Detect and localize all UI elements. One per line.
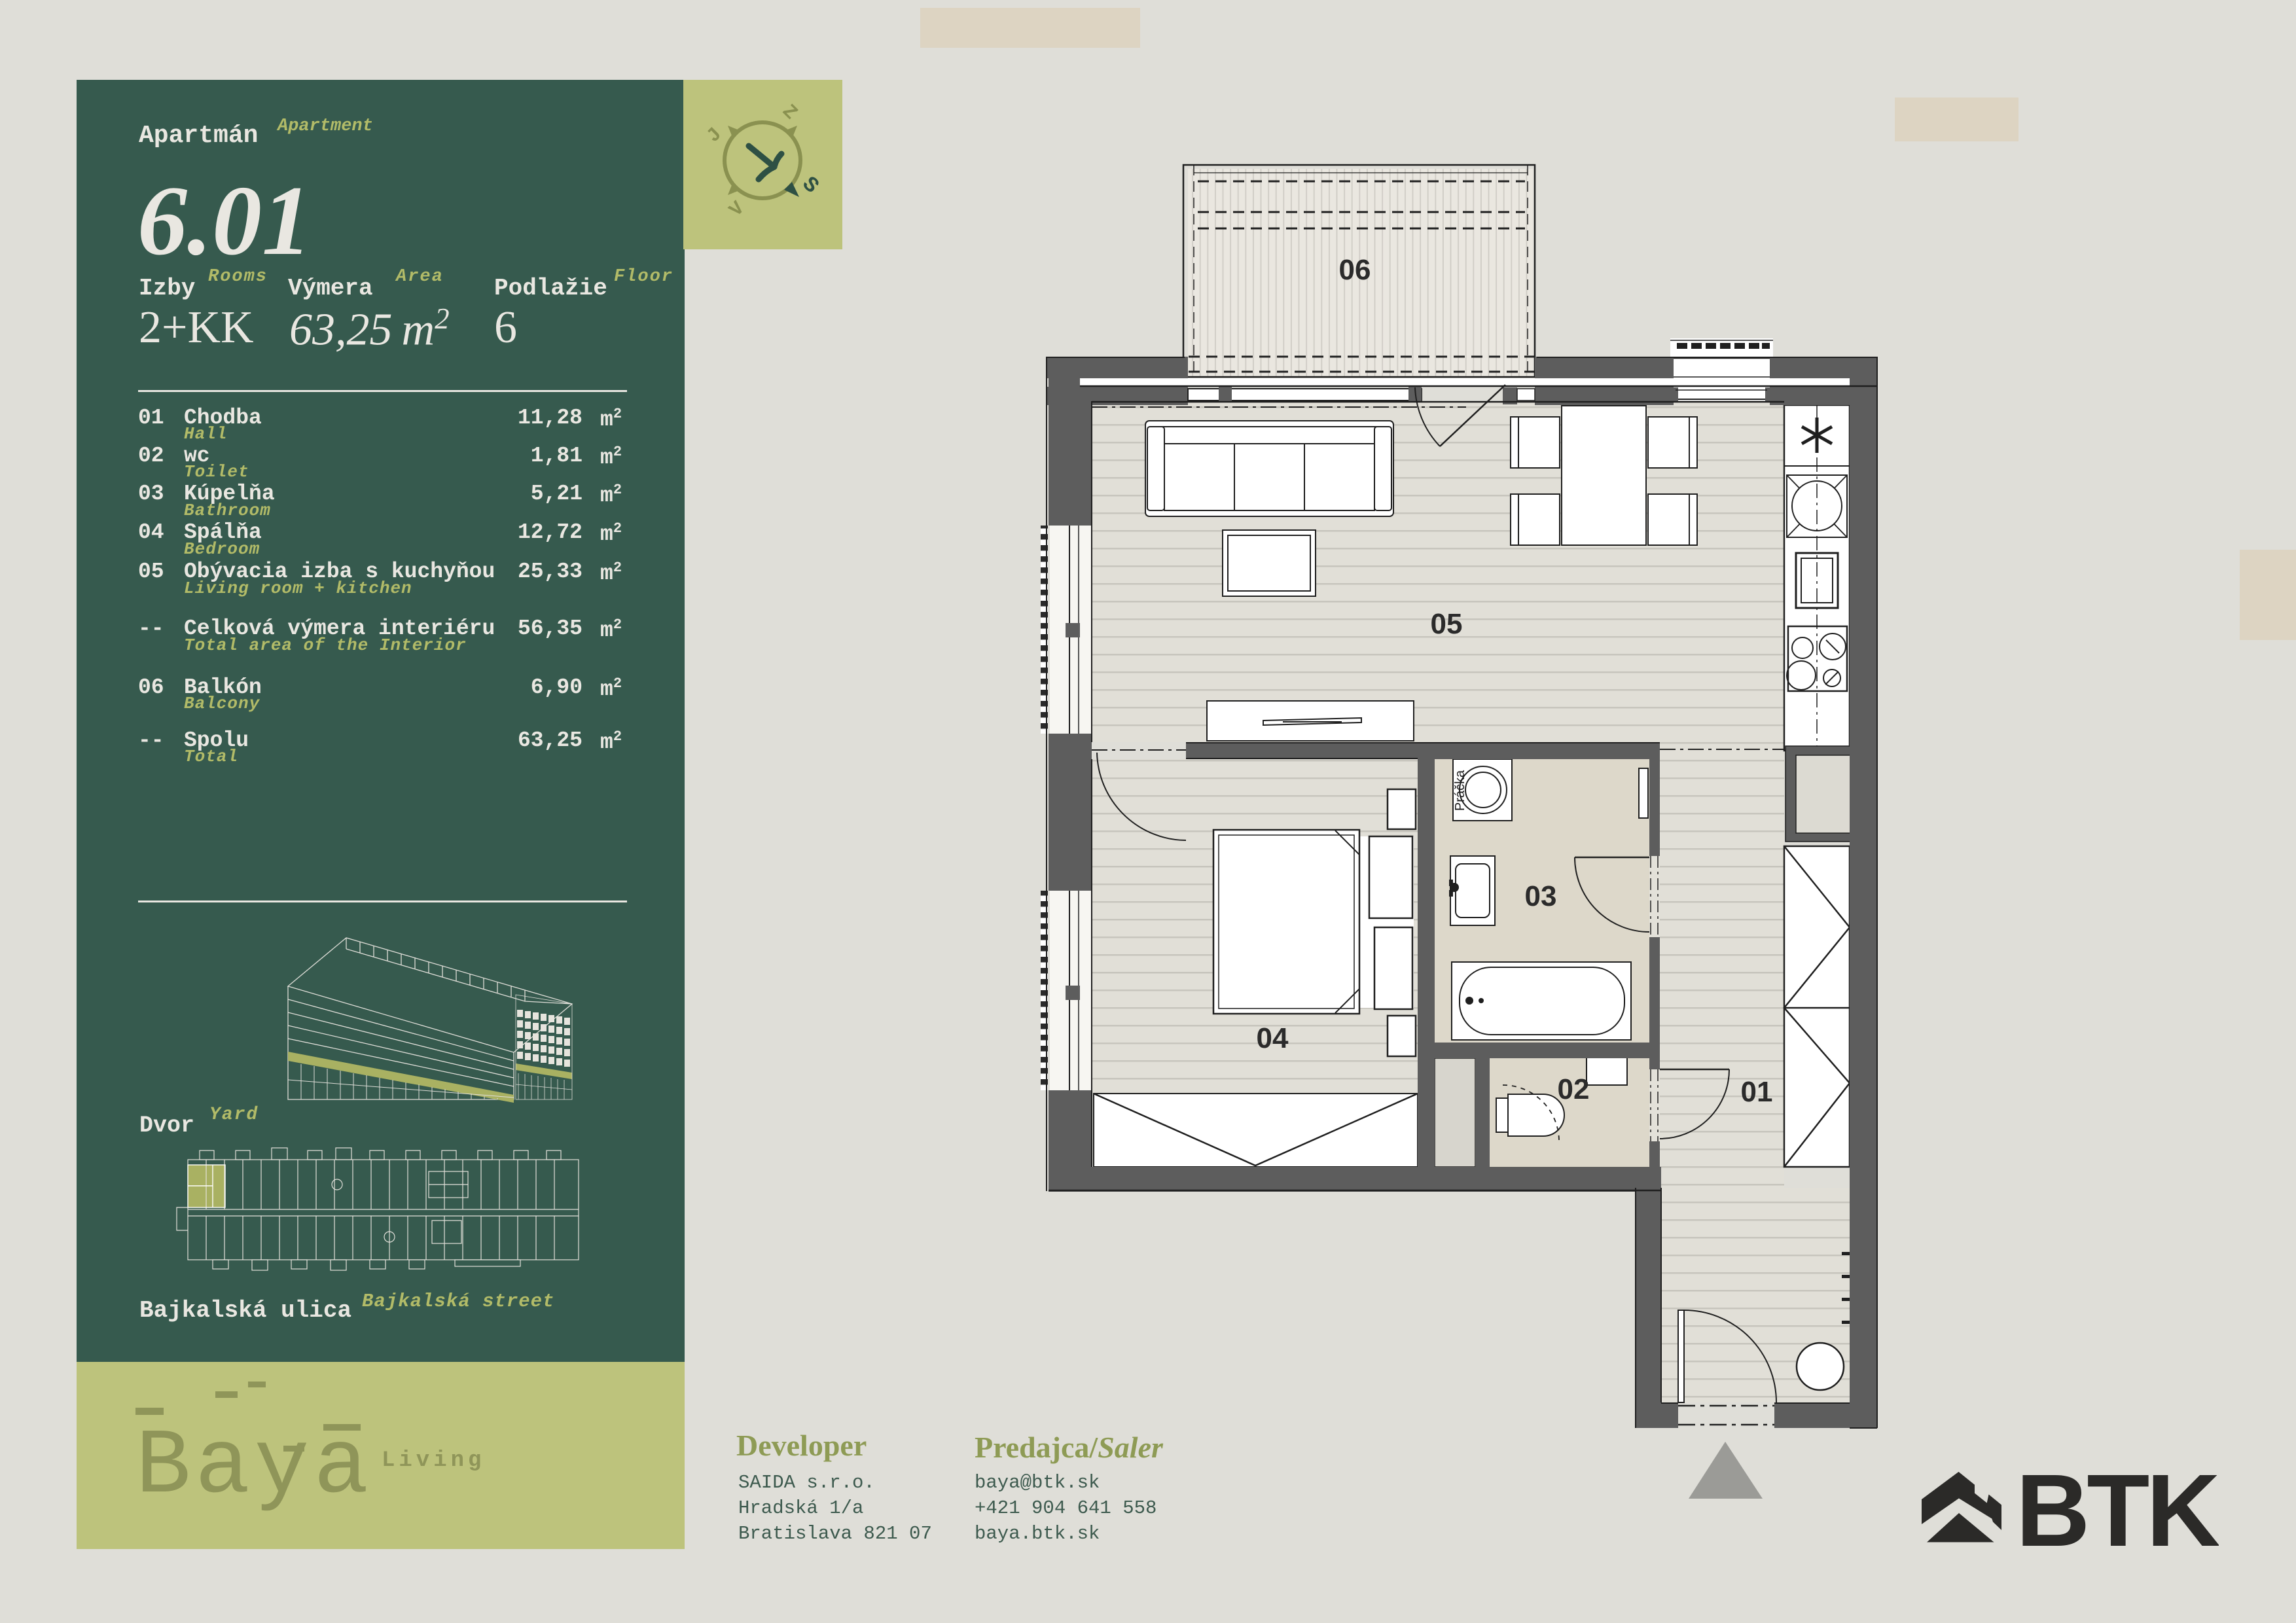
svg-text:J: J [703,124,727,148]
svg-text:S: S [797,172,823,198]
svg-text:06: 06 [1339,254,1371,286]
svg-text:03: 03 [1525,880,1557,912]
svg-text:04: 04 [1257,1022,1289,1054]
svg-text:BTK: BTK [2016,1454,2219,1551]
svg-text:05: 05 [1431,608,1463,640]
svg-text:Z: Z [778,101,802,125]
svg-text:V: V [725,198,749,222]
svg-text:02: 02 [1558,1073,1590,1105]
svg-text:01: 01 [1741,1076,1773,1108]
svg-text:Práčka: Práčka [1453,770,1467,811]
